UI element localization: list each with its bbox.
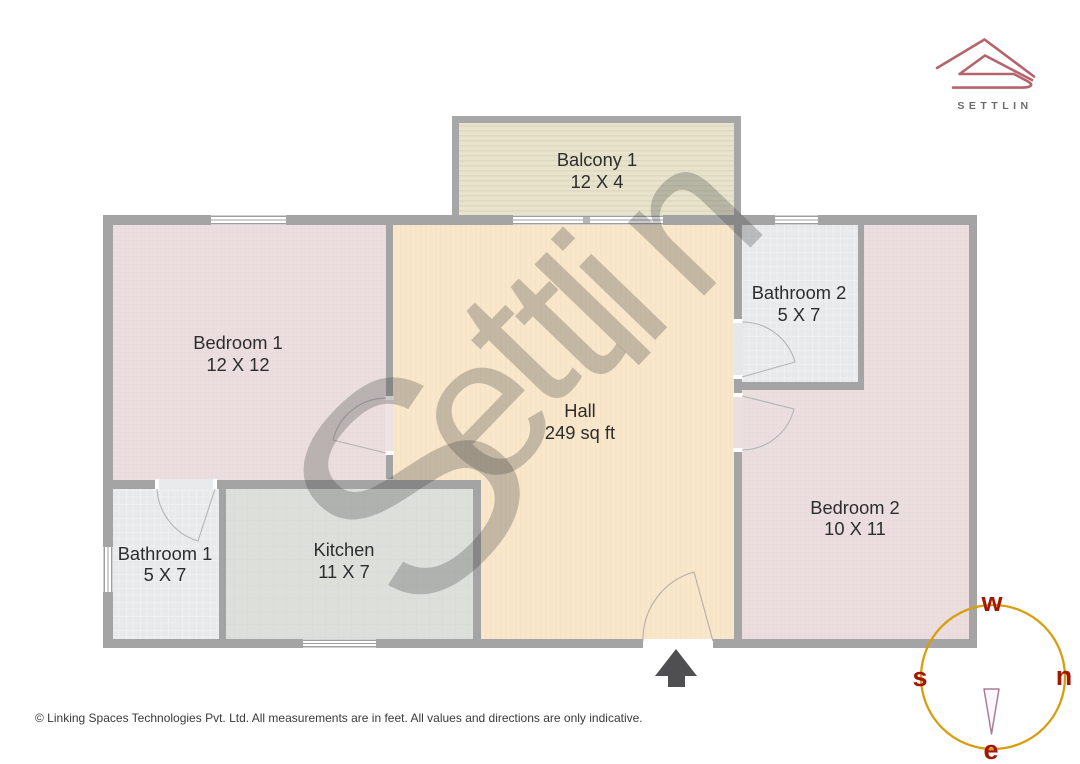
svg-text:e: e <box>983 735 998 764</box>
svg-text:n: n <box>1056 661 1073 691</box>
svg-text:12 X 4: 12 X 4 <box>571 171 624 192</box>
svg-text:Bedroom 1: Bedroom 1 <box>193 332 282 353</box>
svg-text:11 X 7: 11 X 7 <box>318 561 370 582</box>
svg-text:Balcony 1: Balcony 1 <box>557 149 637 170</box>
svg-text:Bathroom 1: Bathroom 1 <box>118 543 213 564</box>
svg-text:Kitchen: Kitchen <box>314 539 375 560</box>
svg-text:SETTLIN: SETTLIN <box>957 100 1032 112</box>
svg-text:12 X 12: 12 X 12 <box>206 354 269 375</box>
svg-text:© Linking Spaces Technologies: © Linking Spaces Technologies Pvt. Ltd. … <box>35 711 643 725</box>
svg-text:10 X 11: 10 X 11 <box>824 518 886 539</box>
svg-text:5 X 7: 5 X 7 <box>778 304 821 325</box>
svg-text:5 X 7: 5 X 7 <box>144 564 187 585</box>
svg-text:249 sq ft: 249 sq ft <box>545 422 615 443</box>
svg-text:s: s <box>912 662 927 692</box>
svg-text:Bedroom 2: Bedroom 2 <box>810 497 899 518</box>
svg-text:Hall: Hall <box>564 400 596 421</box>
svg-text:w: w <box>980 587 1003 617</box>
svg-text:Bathroom 2: Bathroom 2 <box>752 282 847 303</box>
